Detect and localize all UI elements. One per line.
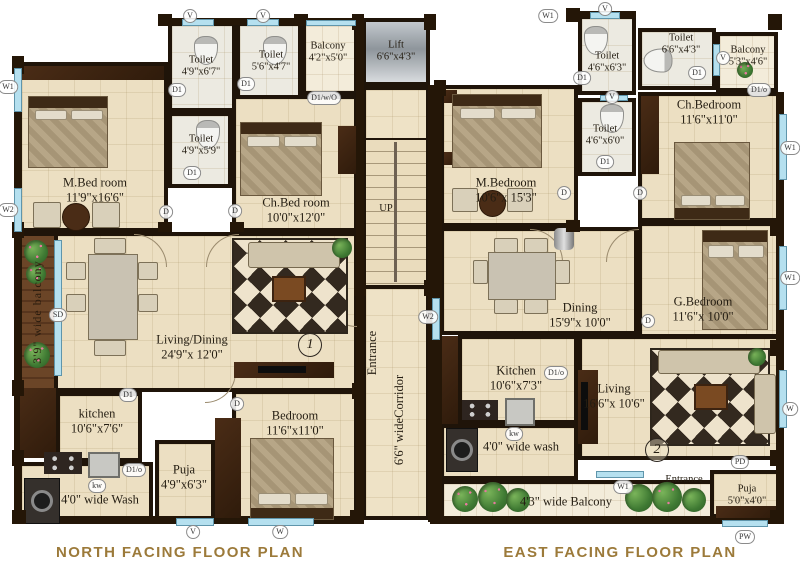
round-table	[62, 203, 90, 231]
w1-marker: W1	[613, 480, 633, 494]
chair	[66, 294, 86, 312]
label-north-toilet-3: Toilet4'9"x5'9"	[182, 134, 221, 159]
chair	[138, 294, 158, 312]
wall-column	[354, 280, 366, 296]
plant	[652, 482, 682, 512]
wall-column	[770, 510, 784, 524]
plant	[478, 482, 508, 512]
w1-marker: W1	[780, 271, 800, 285]
wall-column	[158, 14, 172, 26]
armchair	[92, 202, 120, 228]
utility-shaft	[442, 336, 458, 424]
label-east-toilet-2: Toilet6'6"x4'3"	[662, 33, 701, 58]
v-marker: V	[605, 90, 619, 104]
sd-marker: SD	[49, 308, 67, 322]
stove	[462, 400, 498, 420]
d1-marker: D1	[168, 83, 186, 97]
label-east-balcony-top: Balcony5'3"x4'6"	[729, 45, 768, 70]
chair	[555, 260, 570, 284]
unit-number-2: 2	[645, 438, 669, 462]
washing-machine	[446, 428, 478, 472]
chair	[94, 340, 126, 356]
w1-marker: W1	[0, 80, 18, 94]
label-up: UP	[379, 203, 392, 215]
chair	[94, 238, 126, 254]
sofa	[754, 374, 776, 434]
window	[306, 20, 356, 26]
east-plan-title: EAST FACING FLOOR PLAN	[503, 544, 736, 561]
window	[779, 370, 787, 428]
plant	[682, 488, 706, 512]
d-marker: D	[641, 314, 655, 328]
label-east-balcony-bottom: 4'3" wide Balcony	[520, 495, 612, 510]
d1-marker: D1	[119, 388, 137, 402]
d1-marker: D1	[596, 155, 614, 169]
label-north-toilet-2: Toilet5'6"x4'7"	[252, 50, 291, 75]
label-lift: Lift6'6"x4'3"	[377, 40, 416, 65]
label-north-bedroom: Bedroom11'6"x11'0"	[266, 408, 324, 438]
d1o-marker: D1/o	[544, 366, 568, 380]
label-north-side-balcony: 3'9" wide balcony	[31, 260, 45, 363]
rug-center	[694, 384, 728, 410]
tv	[258, 366, 306, 373]
label-north-m-bedroom: M.Bed room11'9"x16'6"	[63, 175, 127, 205]
bed	[674, 142, 750, 220]
wall	[356, 18, 364, 522]
d1-marker: D1	[573, 71, 591, 85]
v-marker: V	[186, 525, 200, 539]
label-east-toilet-1: Toilet4'6"x6'3"	[588, 51, 627, 76]
d1o-marker: D1/o	[122, 463, 146, 477]
v-marker: V	[598, 2, 612, 16]
v-marker: V	[716, 51, 730, 65]
wall-column	[424, 14, 436, 30]
window	[722, 520, 768, 527]
chair	[524, 238, 548, 253]
label-east-m-bedroom: M.Bedroom10'6"x 15'3"	[475, 175, 537, 205]
plant	[332, 238, 352, 258]
label-east-kitchen: Kitchen10'6"x7'3"	[490, 363, 542, 393]
wall-column	[770, 340, 782, 356]
label-east-dining: Dining15'9"x 10'0"	[549, 300, 611, 330]
label-north-puja: Puja4'9"x6'3"	[161, 462, 207, 492]
label-north-living-dining: Living/Dining24'9"x 12'0"	[156, 332, 228, 362]
wall-column	[434, 80, 446, 96]
unit-number-1: 1	[298, 333, 322, 357]
label-north-toilet-1: Toilet4'9"x6'7"	[182, 55, 221, 80]
dining-table	[488, 252, 556, 300]
sofa	[248, 242, 340, 268]
wardrobe	[641, 96, 659, 174]
bed	[250, 438, 334, 520]
label-east-puja: Puja5'0"x4'0"	[728, 484, 767, 509]
label-corridor-entrance: Entrance	[365, 331, 379, 375]
w-marker: W	[782, 402, 798, 416]
d1-marker: D1	[237, 77, 255, 91]
utility-shaft	[20, 388, 56, 458]
label-north-ch-bedroom: Ch.Bed room10'0"x12'0"	[262, 195, 329, 225]
washing-machine	[24, 478, 60, 524]
d1o-marker: D1/o	[747, 83, 771, 97]
label-corridor: 6'6" wideCorridor	[392, 375, 406, 465]
w1-marker: W1	[538, 9, 558, 23]
chair	[524, 299, 548, 314]
wall-column	[770, 450, 782, 466]
stove	[44, 452, 82, 474]
label-north-balcony-top: Balcony4'2"x5'0"	[309, 41, 348, 66]
chair	[66, 262, 86, 280]
north-plan-title: NORTH FACING FLOOR PLAN	[56, 544, 304, 561]
d-marker: D	[228, 204, 242, 218]
label-north-kitchen: kitchen10'6"x7'6"	[71, 406, 123, 436]
wall-column	[12, 510, 26, 524]
sink	[88, 452, 120, 478]
wall-column	[430, 510, 444, 524]
chair	[494, 238, 518, 253]
d-marker: D	[557, 186, 571, 200]
floor-plan-canvas: M.Bed room11'9"x16'6" Toilet4'9"x6'7" To…	[0, 0, 800, 576]
wall-column	[768, 14, 782, 30]
w2-marker: W2	[418, 310, 438, 324]
kw-marker: kw	[88, 479, 106, 493]
kw-marker: kw	[505, 427, 523, 441]
label-east-wash: 4'0" wide wash	[483, 440, 559, 455]
wall-column	[770, 220, 782, 236]
label-east-entrance: Entrance	[665, 474, 702, 486]
dining-table	[88, 254, 138, 340]
d-marker: D	[633, 186, 647, 200]
v-marker: V	[183, 9, 197, 23]
pd-marker: PD	[731, 455, 749, 469]
w-marker: W	[272, 525, 288, 539]
d-marker: D	[159, 205, 173, 219]
wall-column	[230, 222, 244, 232]
armchair	[452, 188, 478, 212]
label-east-living: Living16'6"x 10'6"	[583, 381, 645, 411]
chair	[138, 262, 158, 280]
wardrobe	[22, 66, 164, 80]
label-east-toilet-3: Toilet4'6"x6'0"	[586, 124, 625, 149]
stair-divider	[394, 142, 397, 282]
bed	[28, 96, 108, 168]
d1-marker: D1	[688, 66, 706, 80]
wall-column	[424, 280, 436, 296]
armchair	[33, 202, 61, 228]
wall-column	[158, 222, 172, 232]
sink	[505, 398, 535, 426]
plant	[452, 486, 478, 512]
bed	[452, 94, 542, 168]
wall-column	[350, 510, 364, 524]
wall-column	[566, 8, 580, 22]
stair-lobby	[362, 86, 430, 142]
plant	[748, 348, 766, 366]
d1-marker: D1	[183, 166, 201, 180]
chair	[494, 299, 518, 314]
window	[596, 471, 644, 478]
v-marker: V	[256, 9, 270, 23]
rug-center	[272, 276, 306, 302]
bed	[240, 122, 322, 196]
label-east-ch-bedroom: Ch.Bedroom11'6"x11'0"	[677, 97, 741, 127]
wardrobe	[215, 418, 241, 518]
wardrobe	[338, 126, 356, 174]
label-north-wash: 4'0" wide Wash	[61, 493, 139, 508]
wall-column	[12, 380, 24, 396]
wall-column	[12, 450, 24, 466]
sofa	[658, 350, 760, 374]
d1wo-marker: D1/w/O	[307, 91, 341, 105]
wall-column	[566, 220, 580, 232]
pw-marker: PW	[735, 530, 755, 544]
w1-marker: W1	[780, 141, 800, 155]
label-east-g-bedroom: G.Bedroom11'6"x 10'0"	[672, 294, 733, 324]
wall-column	[352, 383, 364, 399]
w2-marker: W2	[0, 203, 18, 217]
d-marker: D	[230, 397, 244, 411]
chair	[473, 260, 488, 284]
